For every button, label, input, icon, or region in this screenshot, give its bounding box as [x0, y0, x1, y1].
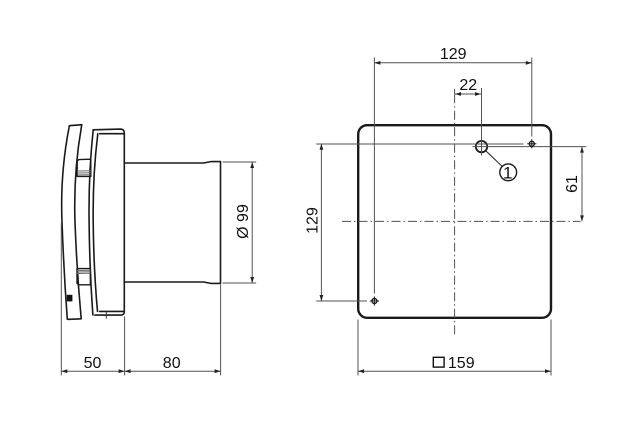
svg-text:80: 80 — [163, 355, 181, 372]
svg-text:159: 159 — [448, 355, 475, 372]
svg-text:50: 50 — [84, 355, 102, 372]
svg-text:22: 22 — [459, 77, 477, 94]
svg-text:129: 129 — [304, 207, 321, 234]
svg-text:61: 61 — [564, 175, 581, 193]
svg-text:129: 129 — [440, 46, 467, 63]
svg-text:1: 1 — [503, 164, 512, 183]
svg-text:Ø 99: Ø 99 — [235, 204, 252, 239]
